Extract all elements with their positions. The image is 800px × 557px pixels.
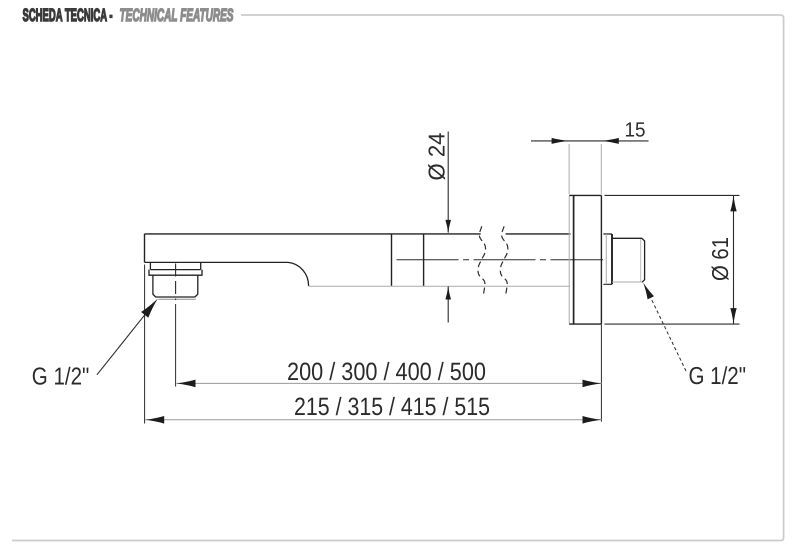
- svg-text:Ø 24: Ø 24: [424, 132, 450, 180]
- svg-text:200 / 300 / 400 / 500: 200 / 300 / 400 / 500: [287, 358, 486, 386]
- svg-text:215 / 315 / 415 / 515: 215 / 315 / 415 / 515: [294, 393, 490, 421]
- svg-text:Ø 61: Ø 61: [707, 237, 733, 281]
- svg-text:TECHNICAL FEATURES: TECHNICAL FEATURES: [120, 5, 234, 25]
- svg-text:15: 15: [625, 119, 646, 142]
- svg-text:G 1/2": G 1/2": [689, 363, 747, 390]
- svg-text:G 1/2": G 1/2": [32, 364, 90, 391]
- svg-text:SCHEDA TECNICA -: SCHEDA TECNICA -: [23, 5, 113, 25]
